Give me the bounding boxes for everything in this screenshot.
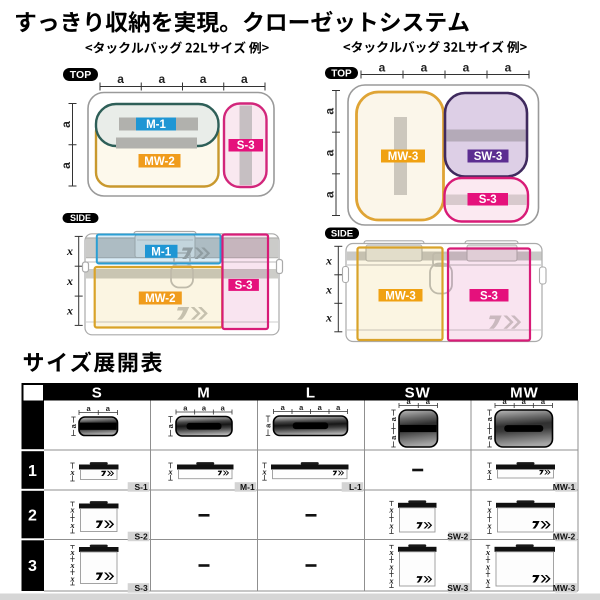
svg-text:x: x — [167, 467, 173, 477]
svg-text:L-1: L-1 — [349, 482, 362, 492]
svg-text:S-3: S-3 — [480, 290, 498, 302]
svg-text:MW-2: MW-2 — [144, 156, 174, 168]
svg-text:a: a — [336, 403, 341, 412]
svg-text:a: a — [485, 435, 494, 440]
svg-text:x: x — [388, 561, 394, 571]
svg-text:MW-3: MW-3 — [385, 290, 415, 302]
svg-text:x: x — [66, 304, 73, 318]
svg-text:x: x — [69, 560, 75, 570]
svg-text:a: a — [183, 404, 188, 413]
svg-text:S-3: S-3 — [235, 280, 253, 292]
svg-text:x: x — [486, 520, 492, 530]
svg-text:x: x — [388, 520, 394, 530]
svg-text:a: a — [159, 72, 166, 86]
svg-text:a: a — [59, 121, 73, 128]
svg-text:M-1: M-1 — [146, 119, 166, 131]
svg-text:a: a — [87, 404, 92, 413]
svg-text:a: a — [59, 162, 73, 169]
svg-text:x: x — [325, 254, 332, 268]
svg-text:MW-2: MW-2 — [145, 293, 175, 305]
svg-text:SW-2: SW-2 — [447, 532, 468, 542]
svg-text:x: x — [485, 575, 491, 585]
svg-text:a: a — [389, 416, 398, 421]
svg-text:x: x — [261, 467, 267, 477]
svg-text:x: x — [486, 466, 492, 476]
svg-text:MW-3: MW-3 — [553, 583, 576, 593]
svg-text:M: M — [197, 384, 211, 401]
svg-text:S-1: S-1 — [134, 482, 148, 492]
svg-text:a: a — [485, 416, 494, 421]
svg-text:a: a — [221, 404, 226, 413]
svg-text:a: a — [69, 423, 78, 428]
svg-text:x: x — [325, 311, 332, 325]
svg-text:x: x — [69, 520, 75, 530]
svg-text:a: a — [505, 61, 512, 75]
svg-text:a: a — [389, 435, 398, 440]
svg-text:a: a — [202, 404, 207, 413]
svg-text:a: a — [323, 191, 337, 198]
svg-text:x: x — [485, 547, 491, 557]
svg-text:MW-1: MW-1 — [553, 482, 576, 492]
svg-text:a: a — [106, 404, 111, 413]
svg-text:a: a — [323, 149, 337, 156]
svg-text:2: 2 — [28, 508, 37, 525]
svg-text:M-1: M-1 — [151, 246, 171, 258]
svg-text:a: a — [379, 61, 386, 75]
svg-text:x: x — [388, 547, 394, 557]
svg-text:a: a — [117, 72, 124, 86]
svg-text:MW-3: MW-3 — [388, 151, 418, 163]
svg-text:a: a — [200, 72, 207, 86]
svg-text:1: 1 — [28, 463, 37, 480]
svg-text:a: a — [264, 423, 273, 428]
svg-text:a: a — [421, 61, 428, 75]
svg-text:x: x — [66, 274, 73, 288]
svg-text:S-3: S-3 — [134, 583, 148, 593]
svg-text:SIDE: SIDE — [70, 213, 91, 223]
svg-text:a: a — [318, 403, 323, 412]
svg-text:TOP: TOP — [70, 69, 91, 81]
svg-text:SW-3: SW-3 — [447, 583, 468, 593]
svg-text:MW-2: MW-2 — [553, 532, 576, 542]
svg-text:x: x — [486, 504, 492, 514]
svg-text:x: x — [69, 467, 75, 477]
svg-text:a: a — [281, 403, 286, 412]
svg-text:x: x — [69, 573, 75, 583]
svg-text:x: x — [388, 504, 394, 514]
svg-text:a: a — [463, 61, 470, 75]
svg-text:M-1: M-1 — [240, 482, 255, 492]
svg-text:3: 3 — [28, 558, 37, 575]
svg-text:S-3: S-3 — [479, 194, 497, 206]
svg-text:a: a — [323, 108, 337, 115]
svg-text:x: x — [485, 561, 491, 571]
svg-text:x: x — [69, 547, 75, 557]
svg-text:x: x — [388, 575, 394, 585]
svg-text:x: x — [66, 244, 73, 258]
svg-text:a: a — [299, 403, 304, 412]
svg-text:S-2: S-2 — [134, 532, 148, 542]
svg-text:TOP: TOP — [331, 69, 352, 80]
svg-text:S: S — [92, 384, 103, 401]
svg-text:x: x — [69, 505, 75, 515]
svg-text:S-3: S-3 — [237, 140, 255, 152]
svg-text:a: a — [241, 72, 248, 86]
svg-text:SIDE: SIDE — [331, 229, 353, 240]
svg-text:a: a — [166, 423, 175, 428]
svg-text:L: L — [306, 384, 316, 401]
svg-text:SW-3: SW-3 — [474, 151, 503, 163]
svg-text:x: x — [325, 283, 332, 297]
